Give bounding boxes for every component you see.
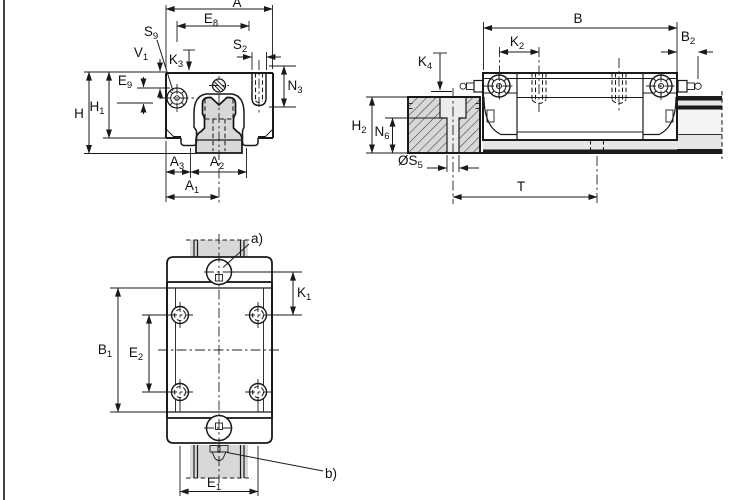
dim-S2: S2 [233,37,281,70]
dim-S5: ØS5 [398,153,479,172]
dim-label-s9: S9 [144,24,158,42]
dim-E2: E2 [129,315,171,392]
corner-chamfer-left [166,129,181,137]
dim-label-n6: N6 [374,124,389,142]
note-label-b: b) [325,466,337,481]
side-view: B K2 B2 K4 H2 [351,11,722,204]
dim-label-k4: K4 [418,54,432,72]
plan-view: a) b) K1 B1 E2 [98,231,337,496]
dimension-drawing-canvas: A E8 S9 K3 S2 [0,0,750,500]
dim-label-t: T [517,179,525,194]
dim-label-a3: A3 [170,154,184,172]
dim-label-k3: K3 [169,52,183,70]
front-view: A E8 S9 K3 S2 [74,0,302,203]
dim-label-e2: E2 [129,345,143,363]
dim-N3: N3 [269,66,303,107]
dim-label-b2: B2 [681,29,695,47]
corner-chamfer-right [258,129,273,137]
technical-drawing-page: A E8 S9 K3 S2 [0,0,750,500]
note-label-a: a) [251,231,263,246]
dim-B2: B2 [661,29,713,79]
dim-E9: E9 [117,73,170,114]
dim-label-s2: S2 [233,37,247,55]
dim-K2: K2 [500,34,540,52]
dim-A1: A1 [166,178,219,197]
dim-label-a1: A1 [185,178,199,196]
dim-label-e9: E9 [118,73,132,91]
carriage-side-outline [483,73,677,140]
dim-label-k2: K2 [510,34,524,52]
dim-label-k1: K1 [297,285,311,303]
dim-K4: K4 [418,53,452,92]
dim-label-a: A [232,0,241,10]
grease-nipple-right [678,81,701,93]
top-thread-hole [209,79,229,92]
dim-label-a2: A2 [210,154,224,172]
grease-nipple-left [460,81,483,93]
rail-section [408,88,480,204]
dim-label-b: B [573,11,582,26]
dim-T: T [453,179,597,197]
dim-label-b1: B1 [98,342,112,360]
dim-label-v1: V1 [134,45,148,63]
dim-label-h2: H2 [351,118,366,136]
dim-label-h1: H1 [89,99,104,117]
dim-label-s5: ØS5 [398,153,423,171]
rail-under-carriage [483,140,677,204]
dim-label-n3: N3 [288,78,303,96]
dim-label-h: H [74,106,84,121]
rail-elevation-right [677,91,722,159]
dim-K3: K3 [169,50,195,70]
side-thread-hole [252,60,266,113]
